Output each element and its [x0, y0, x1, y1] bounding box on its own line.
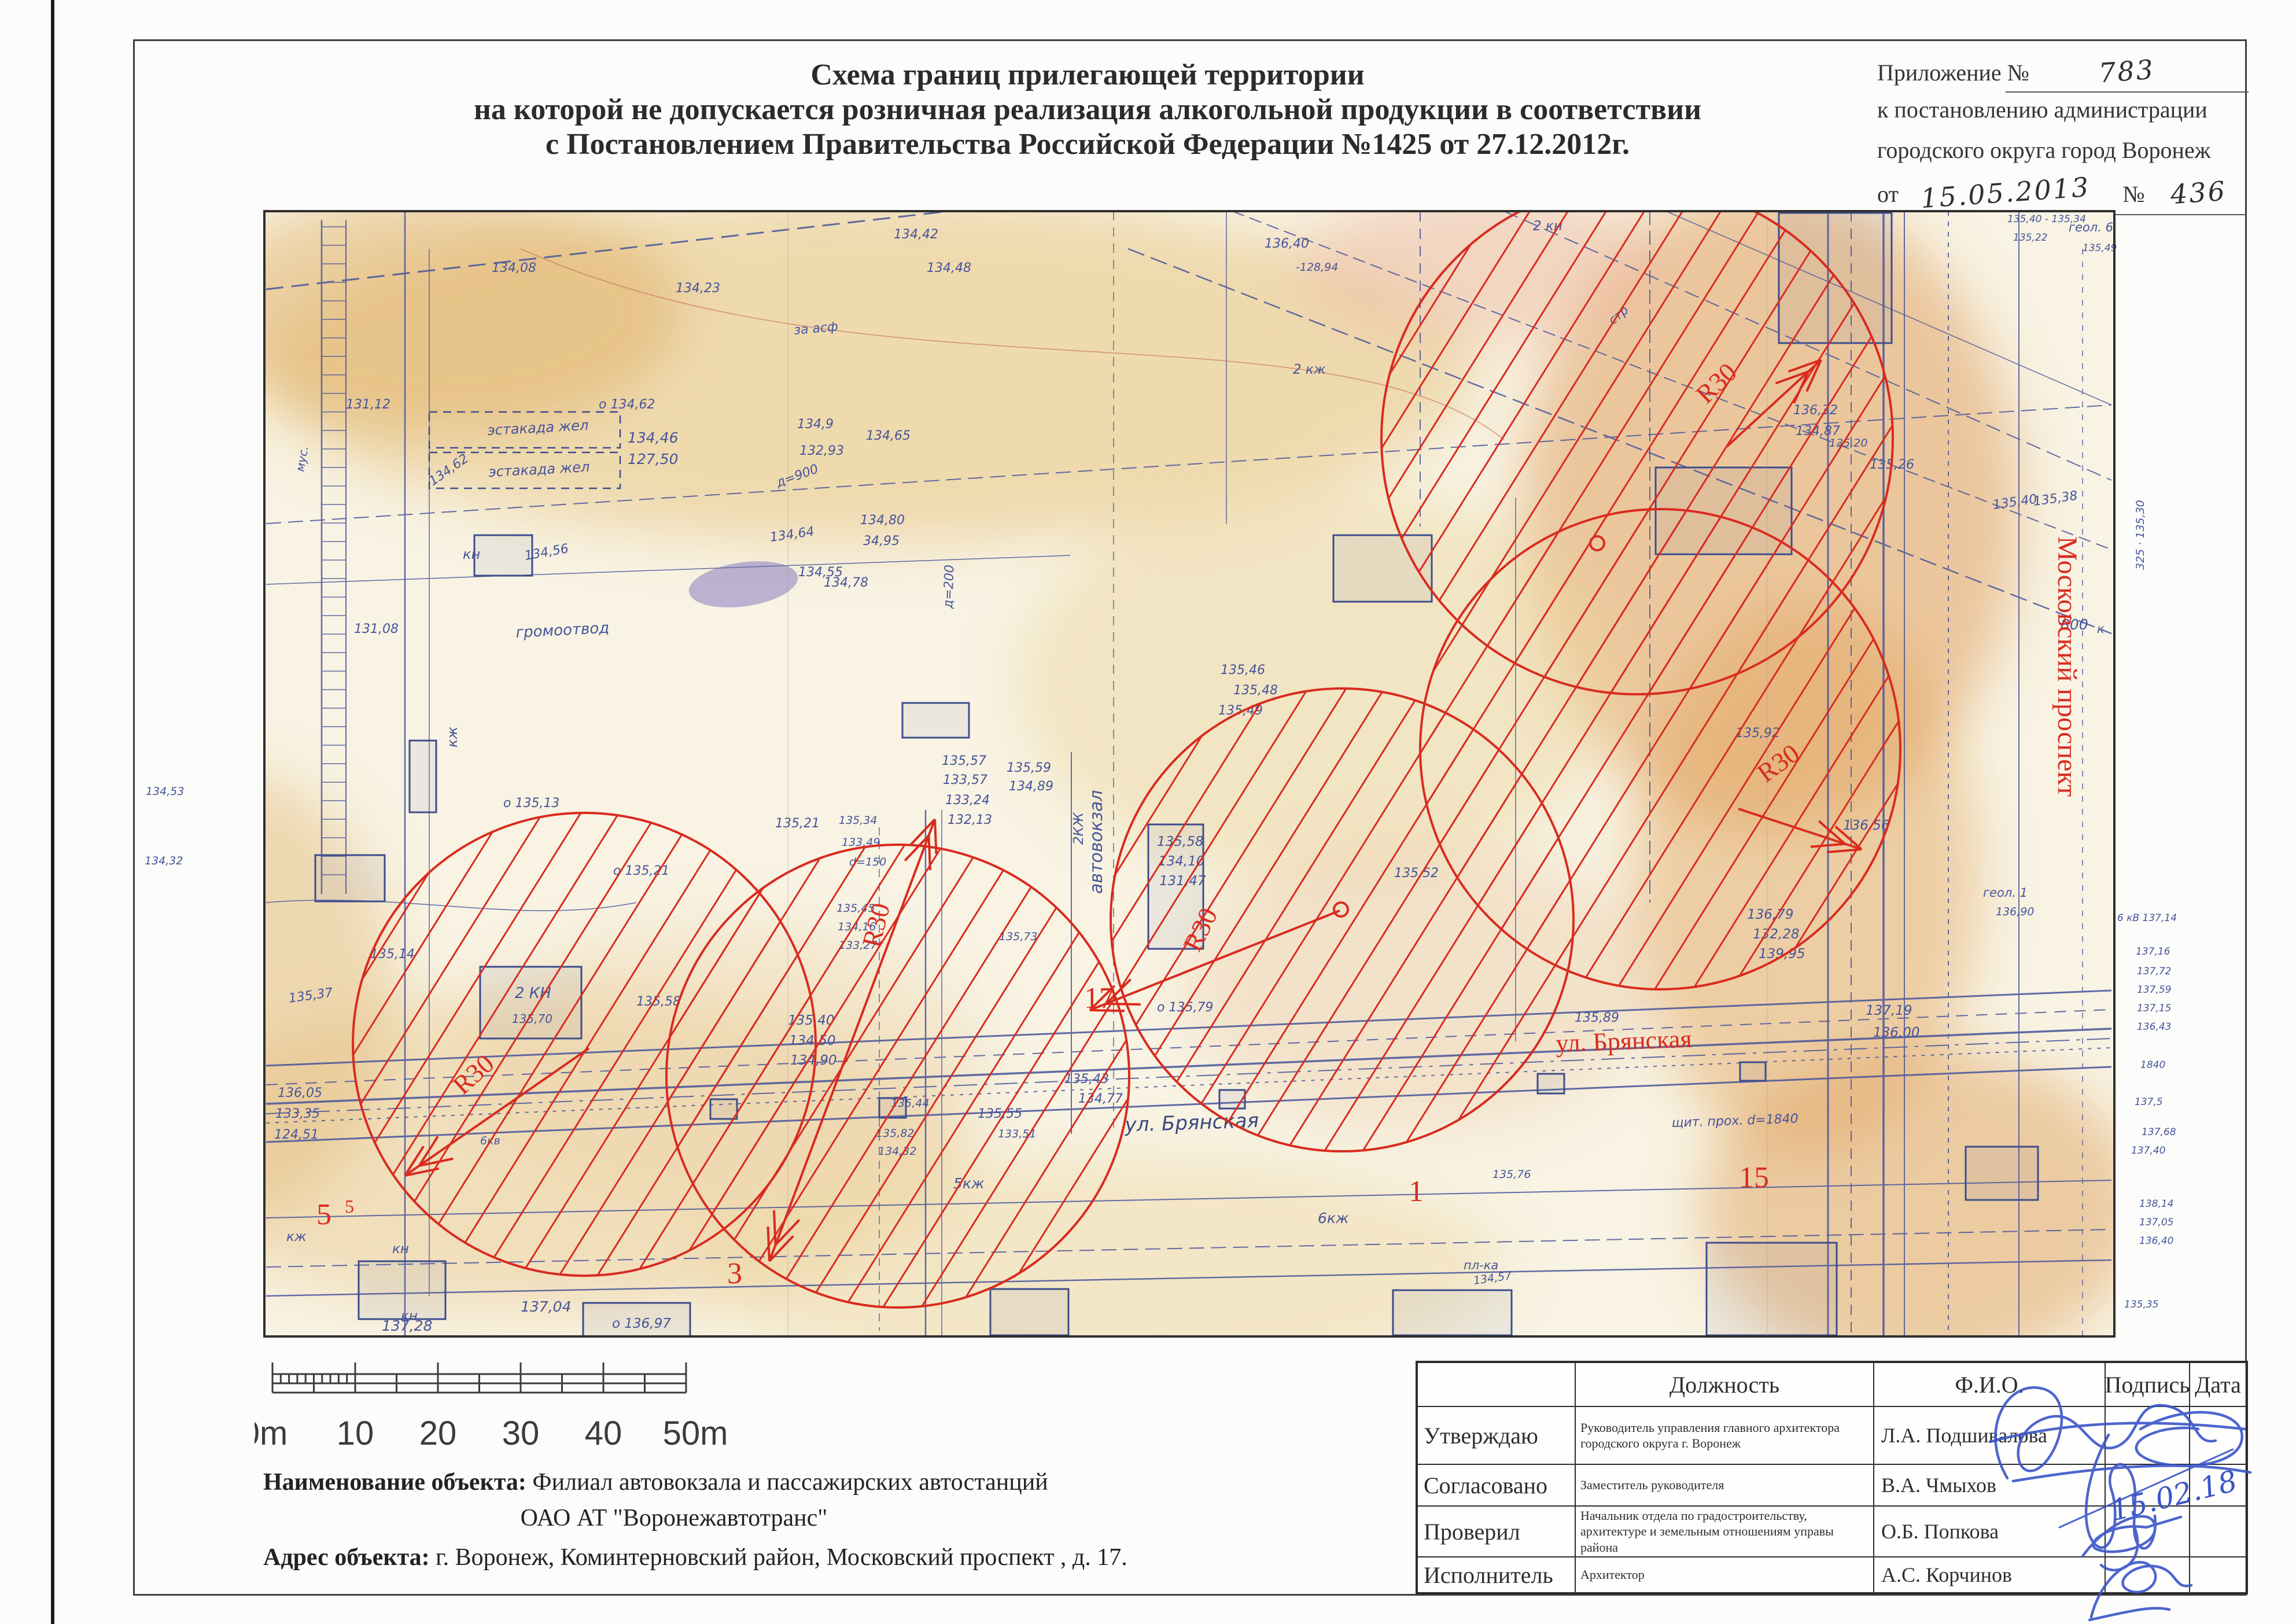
map-label: 134,32	[145, 855, 183, 867]
map-label: 134,48	[927, 261, 971, 275]
map-label: 132,93	[799, 444, 844, 458]
scale-label: 50m	[663, 1415, 728, 1452]
table-header-1: Должность	[1575, 1362, 1874, 1406]
map-label: 137,15	[2137, 1003, 2171, 1014]
map-label: 135,76	[1492, 1168, 1531, 1181]
map-label: 134,78	[824, 576, 868, 590]
table-date-0	[2190, 1406, 2246, 1464]
map-label: кн	[401, 1309, 418, 1324]
map-label: 134,08	[492, 261, 536, 275]
table-name-0: Л.А. Подшивалова	[1874, 1406, 2105, 1464]
table-role-1: Согласовано	[1417, 1464, 1575, 1506]
table-signature-3	[2105, 1557, 2190, 1593]
restriction-circle	[666, 845, 1129, 1308]
map-label: 137,19	[1866, 1003, 1912, 1018]
map-red-label: 5	[345, 1196, 354, 1217]
object-name-line2: ОАО АТ "Воронежавтотранс"	[263, 1504, 1085, 1532]
annex-no-label: №	[2122, 181, 2144, 207]
map-red-label: Московский проспект	[2052, 536, 2083, 797]
map-label: о 134,62	[599, 397, 655, 412]
object-name-label: Наименование объекта:	[263, 1469, 526, 1496]
table-header-2: Ф.И.О.	[1874, 1362, 2105, 1406]
map-label: кж	[444, 727, 460, 747]
map-label: 135,35	[2124, 1299, 2158, 1310]
map-label: геол. 6	[2069, 220, 2113, 234]
map-label: 325 · 135,30	[2134, 500, 2147, 570]
table-header-3: Подпись	[2105, 1362, 2190, 1406]
map-label: 137,40	[2131, 1145, 2165, 1157]
scale-label: 40	[585, 1415, 622, 1452]
map-label: 134,89	[1009, 779, 1053, 794]
title-line-3: с Постановлением Правительства Российско…	[364, 127, 1811, 162]
map-label: 136,43	[2137, 1021, 2171, 1033]
map-red-label: 17	[1084, 982, 1114, 1015]
map-label: 134,23	[676, 281, 720, 296]
map-label: кж	[286, 1229, 307, 1244]
annex-from-label: от	[1877, 181, 1899, 207]
scale-label: 0m	[255, 1415, 288, 1452]
table-position-1: Заместитель руководителя	[1575, 1464, 1874, 1506]
object-address-label: Адрес объекта:	[263, 1544, 430, 1571]
map-red-label: 1	[1409, 1175, 1424, 1208]
scale-label: 20	[419, 1415, 457, 1452]
map-label: о 136,97	[612, 1316, 671, 1331]
map-label: пл-ка	[1464, 1258, 1498, 1272]
map-label: 134,46	[628, 429, 678, 446]
map-red-label: ул. Брянская	[1556, 1025, 1693, 1058]
map-label: 127,50	[628, 451, 678, 467]
table-signature-2	[2105, 1506, 2190, 1557]
table-date-3	[2190, 1557, 2246, 1593]
scanned-document-page: Схема границ прилегающей территории на к…	[0, 0, 2296, 1624]
map-label: 135,22	[2013, 232, 2047, 244]
table-signature-0	[2105, 1406, 2190, 1464]
table-role-3: Исполнитель	[1417, 1557, 1575, 1593]
annex-line-2: к постановлению администрации	[1877, 96, 2253, 137]
map-label: 134,65	[866, 429, 911, 443]
table-header-4: Дата	[2190, 1362, 2246, 1406]
table-name-1: В.А. Чмыхов	[1874, 1464, 2105, 1506]
map-label: 136,05	[278, 1086, 322, 1100]
table-name-2: О.Б. Попкова	[1874, 1506, 2105, 1557]
annex-label: Приложение №	[1877, 60, 2029, 86]
map-label: 134,53	[146, 785, 184, 798]
scale-bar: 0m1020304050m	[255, 1351, 740, 1455]
map-label: кн	[463, 546, 480, 562]
map-label: 137,5	[2135, 1096, 2163, 1108]
table-position-2: Начальник отдела по градостроительству, …	[1575, 1506, 1874, 1557]
map-label: 136,00	[1873, 1025, 1919, 1040]
annex-no-handwritten: 436	[2169, 175, 2227, 211]
map-label: 137,72	[2137, 966, 2171, 977]
table-signature-1	[2105, 1464, 2190, 1506]
table-name-3: А.С. Корчинов	[1874, 1557, 2105, 1593]
scan-edge-line	[51, 0, 54, 1624]
map-label: 133,24	[945, 793, 990, 808]
map-label: 133,57	[943, 773, 987, 787]
restriction-circle	[1111, 688, 1573, 1151]
map-label: 131,12	[346, 397, 390, 412]
scale-label: 10	[337, 1415, 374, 1452]
map-label: 134,9	[797, 417, 834, 432]
map-label: 2 кж	[1293, 362, 1326, 377]
map-label: д=200	[941, 565, 957, 609]
map-label: 132,13	[948, 813, 992, 827]
map-label: 137,04	[521, 1298, 571, 1315]
map-label: о 135,13	[503, 796, 559, 811]
map-red-label: 3	[727, 1257, 742, 1290]
territory-map: 134,08134,23134,42134,48136,40-128,94о 1…	[116, 207, 2245, 1339]
map-red-label: 5	[316, 1198, 331, 1231]
object-name-value: Филиал автовокзала и пассажирских автост…	[532, 1469, 1048, 1496]
map-label: -128,94	[1296, 261, 1338, 274]
annex-number-handwritten: 783	[2098, 54, 2155, 89]
scale-label: 30	[502, 1415, 540, 1452]
map-label: 34,95	[863, 534, 900, 548]
object-address-value: г. Воронеж, Коминтерновский район, Моско…	[436, 1544, 1127, 1571]
map-label: 136,90	[1996, 905, 2034, 918]
table-position-3: Архитектор	[1575, 1557, 1874, 1593]
map-label: 137,05	[2139, 1217, 2173, 1228]
map-label: 137,16	[2136, 946, 2170, 958]
map-label: 134,42	[894, 227, 938, 242]
table-role-2: Проверил	[1417, 1506, 1575, 1557]
table-header-0	[1417, 1362, 1575, 1406]
map-label: 138,14	[2139, 1198, 2173, 1210]
map-label: 135,34	[839, 814, 877, 827]
map-label: 131,08	[354, 622, 399, 636]
map-red-label: 15	[1739, 1161, 1769, 1194]
map-label: кн	[392, 1242, 409, 1257]
object-name-line: Наименование объекта: Филиал автовокзала…	[263, 1468, 1247, 1496]
map-label: автовокзал	[1086, 790, 1107, 894]
document-title: Схема границ прилегающей территории на к…	[364, 58, 1811, 162]
map-label: 134,80	[860, 513, 905, 528]
approval-table: ДолжностьФ.И.О.ПодписьДатаУтверждаюРуков…	[1416, 1361, 2248, 1594]
map-label: 124,51	[274, 1128, 319, 1142]
table-date-1	[2190, 1464, 2246, 1506]
table-role-0: Утверждаю	[1417, 1406, 1575, 1464]
title-line-2: на которой не допускается розничная реал…	[364, 93, 1811, 127]
map-label: 6 кВ 137,14	[2117, 912, 2177, 924]
map-label: 135,59	[1007, 761, 1051, 775]
object-address-line: Адрес объекта: г. Воронеж, Коминтерновск…	[263, 1544, 1304, 1571]
map-label: 135,46	[1221, 663, 1265, 677]
map-label: 6кж	[1318, 1210, 1349, 1227]
map-label: 1840	[2140, 1059, 2165, 1071]
map-label: 135,49	[2083, 242, 2117, 254]
map-label: 135,48	[1233, 683, 1278, 698]
map-label: 137,59	[2137, 984, 2171, 996]
table-date-2	[2190, 1506, 2246, 1557]
map-label: 2КЖ	[1071, 812, 1086, 845]
map-label: 136,40	[1265, 237, 1309, 251]
annex-line-3: городского округа город Воронеж	[1877, 137, 2253, 177]
map-label: к	[2097, 622, 2105, 636]
map-label: 137,68	[2142, 1126, 2176, 1138]
title-line-1: Схема границ прилегающей территории	[364, 58, 1811, 93]
table-position-0: Руководитель управления главного архитек…	[1575, 1406, 1874, 1464]
map-label: геол. 1	[1983, 886, 2028, 900]
map-label: 135,89	[1575, 1011, 1619, 1025]
annex-block: Приложение № 783 к постановлению админис…	[1877, 56, 2253, 218]
map-label: 133,35	[275, 1107, 320, 1121]
map-label: 135,21	[775, 816, 820, 831]
map-label: 135,57	[942, 754, 986, 768]
map-label: 136,40	[2139, 1235, 2173, 1247]
scale-bar-ticks	[272, 1362, 686, 1393]
